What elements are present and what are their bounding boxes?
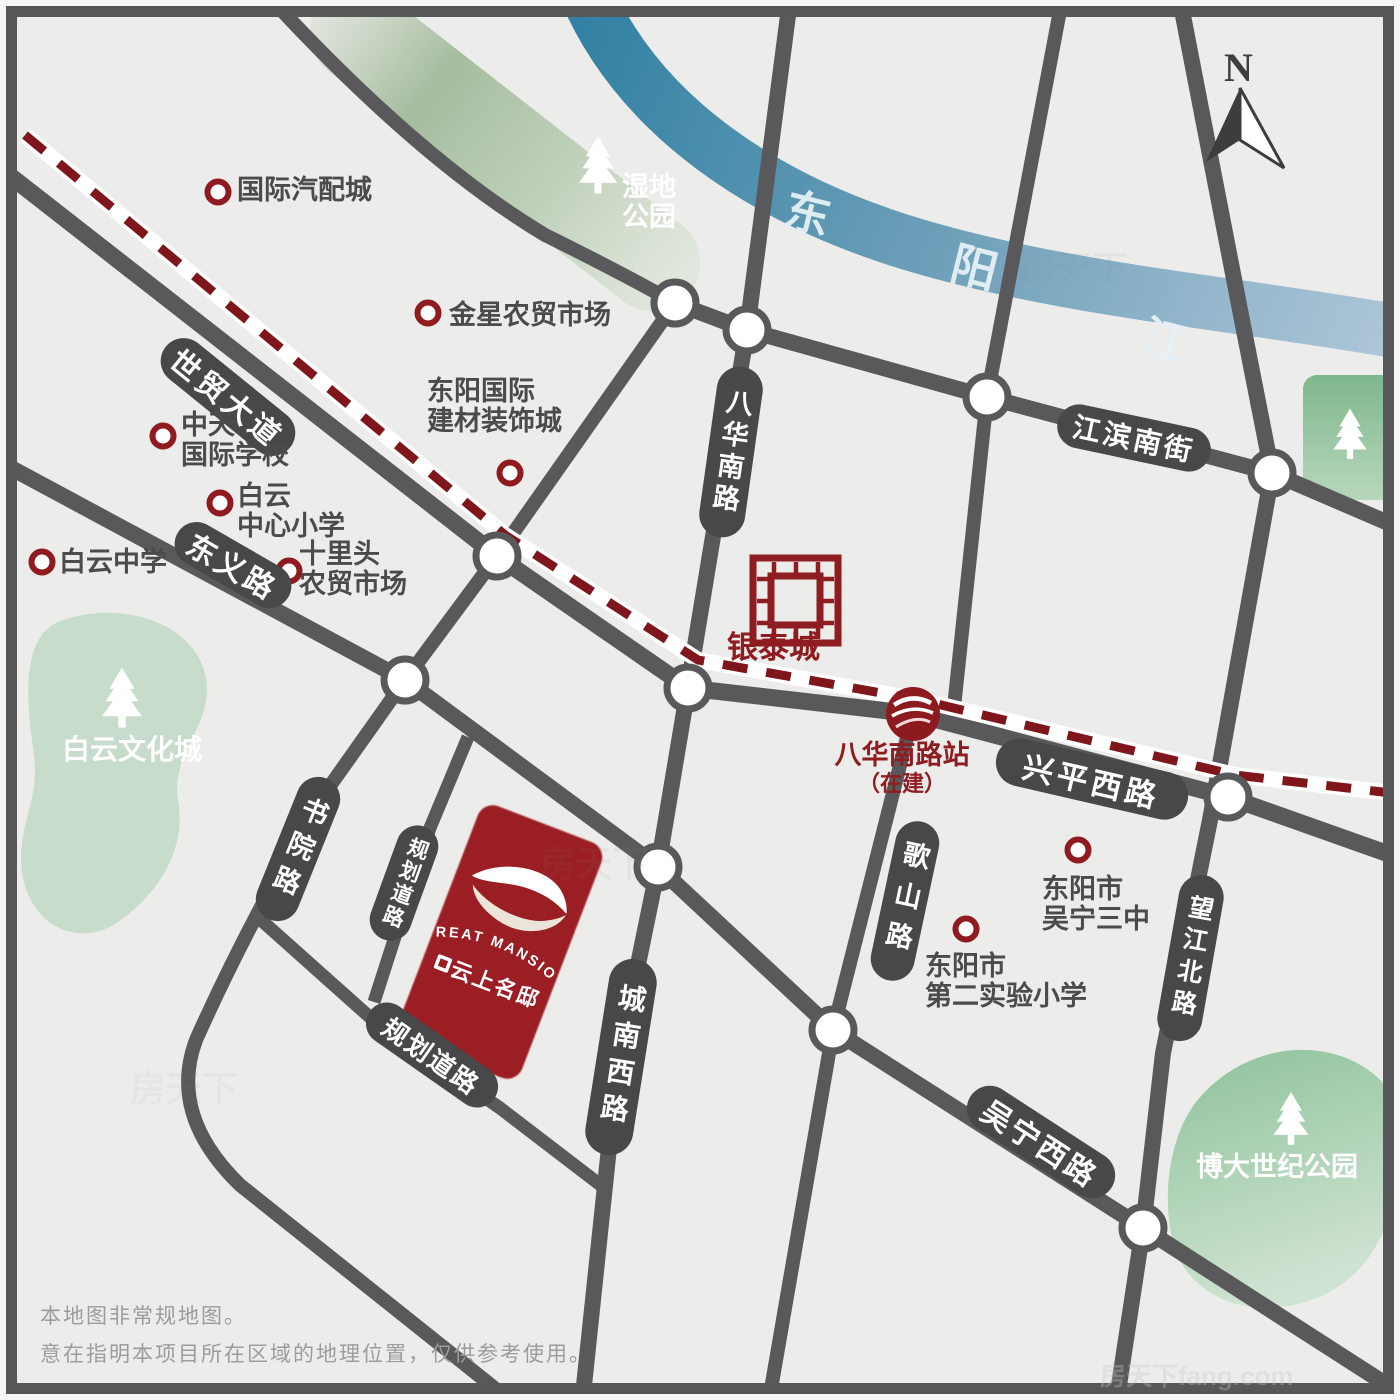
label-layer: N 东 阳 江 世贸大道 东义路 八华南路 江滨南街 兴平西路 歌山路 城南西路… xyxy=(0,0,1400,1400)
label-jinxing-market: 金星农贸市场 xyxy=(449,300,611,330)
road-label-wuning: 吴宁西路 xyxy=(958,1077,1124,1207)
road-label-chengnan: 城南西路 xyxy=(582,955,660,1158)
location-map: GREAT MANSION 云上名邸 xyxy=(0,0,1400,1400)
river-name-char: 江 xyxy=(1136,300,1197,375)
watermark-footer: 房天下fang.com xyxy=(1100,1356,1294,1393)
watermark: 房天下 xyxy=(130,1060,238,1112)
label-line: 湿地 xyxy=(622,172,676,202)
label-dongyang-intl-city: 东阳国际 建材装饰城 xyxy=(427,376,562,436)
label-boda-century-park: 博大世纪公园 xyxy=(1196,1152,1358,1182)
label-line: 建材装饰城 xyxy=(427,406,562,436)
label-line: 中天 xyxy=(181,410,289,440)
label-wuning-no3: 东阳市 吴宁三中 xyxy=(1042,874,1150,934)
river-name-char: 阳 xyxy=(945,227,1006,302)
watermark: 房天下 xyxy=(540,835,648,887)
label-line: 白云 xyxy=(237,481,345,511)
label-baiyun-primary: 白云 中心小学 xyxy=(237,481,345,541)
label-yintai-mall: 银泰城 xyxy=(727,633,820,663)
label-line: 农贸市场 xyxy=(299,569,407,599)
label-line: 吴宁三中 xyxy=(1042,904,1150,934)
label-line: 东阳市 xyxy=(925,951,1087,981)
label-zhongtian-school: 中天 国际学校 xyxy=(181,410,289,470)
road-label-bahua: 八华南路 xyxy=(696,364,765,541)
compass-north-label: N xyxy=(1224,44,1253,91)
label-baiyun-middle: 白云中学 xyxy=(59,547,167,577)
disclaimer-line-2: 意在指明本项目所在区域的地理位置，仅供参考使用。 xyxy=(40,1338,592,1368)
label-line: 十里头 xyxy=(299,539,407,569)
road-label-planned-2: 规划道路 xyxy=(358,994,507,1116)
label-station-name: 八华南路站 xyxy=(782,740,1022,770)
disclaimer-line-1: 本地图非常规地图。 xyxy=(40,1300,247,1330)
watermark: 房天下 xyxy=(1020,240,1128,292)
label-line: 第二实验小学 xyxy=(925,981,1087,1011)
label-second-experimental: 东阳市 第二实验小学 xyxy=(925,951,1087,1011)
road-label-planned-1: 规划道路 xyxy=(364,819,445,946)
label-line: 公园 xyxy=(622,202,676,232)
label-baiyun-culture-city: 白云文化城 xyxy=(62,735,202,765)
river-name-char: 东 xyxy=(778,173,839,248)
label-line: 中心小学 xyxy=(237,511,345,541)
label-shilitou-market: 十里头 农贸市场 xyxy=(299,539,407,599)
label-line: 东阳市 xyxy=(1042,874,1150,904)
road-label-jiangbin: 江滨南街 xyxy=(1053,400,1215,475)
label-line: 东阳国际 xyxy=(427,376,562,406)
road-label-wangjiang: 望江北路 xyxy=(1154,871,1227,1044)
road-label-shuyuan: 书院路 xyxy=(249,770,347,927)
label-auto-parts-city: 国际汽配城 xyxy=(237,175,372,205)
label-line: 国际学校 xyxy=(181,440,289,470)
label-station-status: （在建） xyxy=(782,769,1022,799)
label-wetland-park: 湿地 公园 xyxy=(622,172,676,232)
